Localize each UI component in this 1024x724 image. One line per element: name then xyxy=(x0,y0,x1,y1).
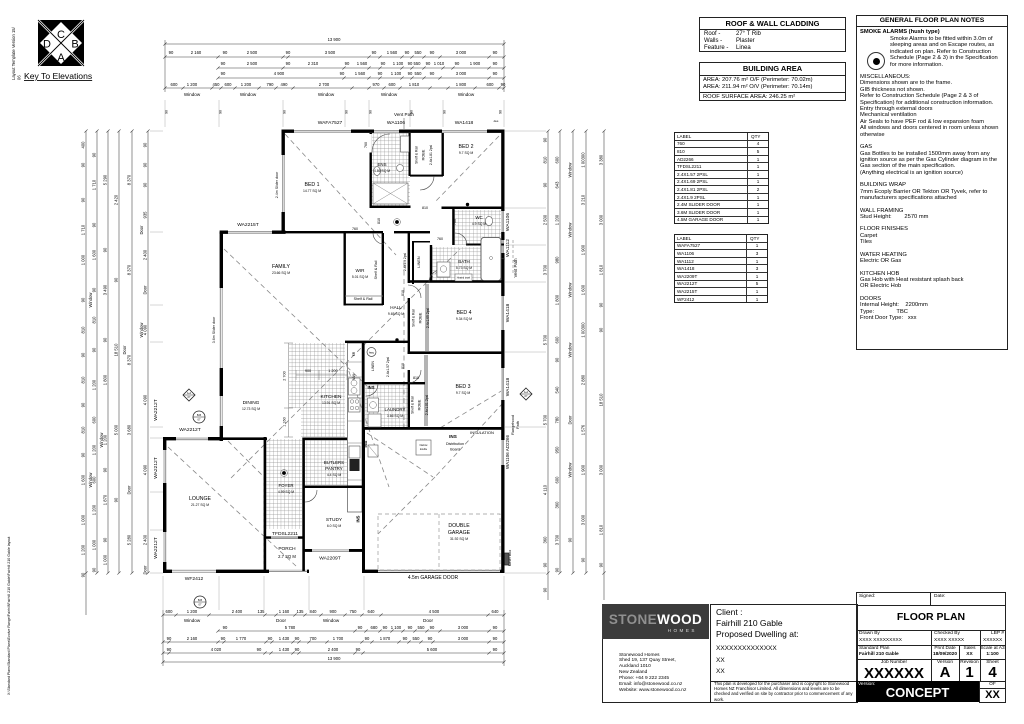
svg-text:1 800: 1 800 xyxy=(103,374,108,385)
svg-text:18 510: 18 510 xyxy=(599,393,604,406)
svg-text:1 00300: 1 00300 xyxy=(581,322,586,338)
svg-text:Window: Window xyxy=(568,462,573,478)
svg-text:07: 07 xyxy=(188,395,191,399)
svg-text:Layout Template Version 15/: Layout Template Version 15/ xyxy=(11,26,16,80)
svg-text:4 900: 4 900 xyxy=(274,71,285,76)
svg-text:D: D xyxy=(43,39,51,51)
svg-text:810: 810 xyxy=(81,426,86,434)
svg-text:1 900: 1 900 xyxy=(470,61,481,66)
svg-text:935: 935 xyxy=(143,211,148,219)
svg-text:07: 07 xyxy=(525,394,528,398)
svg-text:600: 600 xyxy=(389,82,397,87)
svg-text:13 900: 13 900 xyxy=(328,37,341,42)
svg-text:90: 90 xyxy=(358,625,363,630)
svg-text:Window: Window xyxy=(568,282,573,298)
svg-text:90: 90 xyxy=(493,61,498,66)
svg-text:07: 07 xyxy=(199,603,202,607)
svg-text:90: 90 xyxy=(430,50,435,55)
svg-text:ROBE: ROBE xyxy=(419,312,423,323)
svg-text:PANTRY: PANTRY xyxy=(325,466,342,471)
svg-text:ENS: ENS xyxy=(377,162,386,167)
svg-text:680: 680 xyxy=(371,625,379,630)
svg-text:B-B: B-B xyxy=(198,598,203,602)
svg-text:C: C xyxy=(57,29,65,41)
svg-text:9.7 SQ M: 9.7 SQ M xyxy=(456,391,470,395)
svg-text:2.4x1.81-2psl: 2.4x1.81-2psl xyxy=(425,395,429,416)
svg-text:WA2212T: WA2212T xyxy=(153,399,159,421)
svg-text:3.6m Slider door: 3.6m Slider door xyxy=(212,316,216,343)
svg-text:Window: Window xyxy=(323,618,340,623)
svg-text:810: 810 xyxy=(81,326,86,334)
svg-text:490: 490 xyxy=(281,82,289,87)
svg-text:4.5m GARAGE DOOR: 4.5m GARAGE DOOR xyxy=(408,575,459,581)
svg-text:INS: INS xyxy=(449,434,457,439)
svg-text:Window: Window xyxy=(240,92,257,97)
svg-text:5 290: 5 290 xyxy=(103,174,108,185)
svg-text:1 576: 1 576 xyxy=(581,424,586,435)
svg-text:400: 400 xyxy=(81,141,86,149)
svg-text:BED 3: BED 3 xyxy=(456,384,471,390)
svg-text:ROBE: ROBE xyxy=(418,399,422,410)
svg-text:8 370: 8 370 xyxy=(127,354,132,365)
svg-text:3 000: 3 000 xyxy=(458,636,469,641)
svg-text:4 090: 4 090 xyxy=(143,394,148,405)
svg-text:9.65 SQ M: 9.65 SQ M xyxy=(388,312,404,316)
svg-text:1 160: 1 160 xyxy=(283,417,287,427)
svg-text:90: 90 xyxy=(268,636,273,641)
svg-text:450: 450 xyxy=(213,82,221,87)
svg-text:790: 790 xyxy=(267,82,275,87)
svg-text:90: 90 xyxy=(81,162,86,167)
svg-text:760: 760 xyxy=(437,237,443,241)
svg-text:BUTLERS: BUTLERS xyxy=(324,460,344,465)
svg-text:750: 750 xyxy=(350,609,358,614)
svg-text:13.91 SQ M: 13.91 SQ M xyxy=(322,401,340,405)
svg-text:1 200: 1 200 xyxy=(81,544,86,555)
svg-text:1 200: 1 200 xyxy=(92,379,97,390)
svg-text:07: 07 xyxy=(198,418,201,422)
svg-text:4.4 SQ M: 4.4 SQ M xyxy=(327,473,341,477)
svg-text:6.0 SQ M: 6.0 SQ M xyxy=(327,524,341,528)
svg-text:600: 600 xyxy=(166,609,174,614)
svg-text:90: 90 xyxy=(493,636,498,641)
svg-text:90: 90 xyxy=(257,647,262,652)
svg-text:90: 90 xyxy=(378,71,383,76)
svg-text:INS: INS xyxy=(363,440,368,447)
svg-text:810: 810 xyxy=(422,206,428,210)
svg-text:Key To Elevations: Key To Elevations xyxy=(24,71,92,81)
svg-text:980: 980 xyxy=(555,256,560,264)
svg-text:2 700: 2 700 xyxy=(283,371,287,381)
svg-text:WA2212T: WA2212T xyxy=(179,427,201,433)
svg-text:90: 90 xyxy=(92,567,97,572)
svg-text:GARAGE: GARAGE xyxy=(448,530,471,536)
svg-text:Door: Door xyxy=(568,415,573,425)
svg-text:90: 90 xyxy=(92,152,97,157)
svg-text:1 710: 1 710 xyxy=(92,179,97,190)
svg-text:90: 90 xyxy=(543,562,548,567)
svg-text:Shelf & Rail: Shelf & Rail xyxy=(354,297,373,301)
svg-text:23.66 SQ M: 23.66 SQ M xyxy=(272,271,290,275)
svg-text:90: 90 xyxy=(493,625,498,630)
svg-text:DOUBLE: DOUBLE xyxy=(448,523,470,529)
svg-text:Window: Window xyxy=(381,92,398,97)
svg-text:90: 90 xyxy=(426,61,431,66)
svg-text:WIR: WIR xyxy=(356,268,366,273)
svg-text:90: 90 xyxy=(143,162,148,167)
svg-text:des: des xyxy=(494,119,499,123)
svg-text:Window: Window xyxy=(318,92,335,97)
svg-text:360: 360 xyxy=(543,536,548,544)
svg-text:PORCH: PORCH xyxy=(278,546,296,552)
svg-text:INS: INS xyxy=(368,385,375,390)
svg-text:Window: Window xyxy=(184,618,201,623)
svg-text:WA1418: WA1418 xyxy=(505,377,511,396)
svg-text:90: 90 xyxy=(493,71,498,76)
svg-text:90: 90 xyxy=(103,247,108,252)
svg-text:90: 90 xyxy=(81,197,86,202)
svg-text:5 000: 5 000 xyxy=(114,424,119,435)
svg-text:90: 90 xyxy=(356,647,361,652)
svg-text:1 200: 1 200 xyxy=(555,214,560,225)
svg-text:14.77 SQ M: 14.77 SQ M xyxy=(303,189,321,193)
svg-text:90: 90 xyxy=(543,587,548,592)
svg-text:Heated towel: Heated towel xyxy=(457,277,471,280)
svg-text:Door: Door xyxy=(139,225,144,235)
svg-text:90: 90 xyxy=(103,337,108,342)
svg-text:1 560: 1 560 xyxy=(357,61,368,66)
svg-text:1 00300: 1 00300 xyxy=(581,152,586,168)
svg-text:Shelf & Rail: Shelf & Rail xyxy=(374,260,378,279)
svg-text:3 000: 3 000 xyxy=(581,514,586,525)
svg-text:2 500: 2 500 xyxy=(247,50,258,55)
svg-text:INS: INS xyxy=(356,515,361,522)
svg-text:135: 135 xyxy=(297,609,305,614)
svg-text:90: 90 xyxy=(365,636,370,641)
svg-text:950: 950 xyxy=(555,446,560,454)
svg-text:1 000: 1 000 xyxy=(81,254,86,265)
svg-text:5 700: 5 700 xyxy=(543,334,548,345)
svg-text:1 430: 1 430 xyxy=(279,647,290,652)
svg-text:STUDY: STUDY xyxy=(326,517,343,523)
svg-text:2 400: 2 400 xyxy=(143,534,148,545)
svg-text:Window: Window xyxy=(458,92,475,97)
svg-text:double: double xyxy=(420,448,428,451)
svg-text:90: 90 xyxy=(555,357,560,362)
svg-text:600: 600 xyxy=(555,156,560,164)
svg-text:90: 90 xyxy=(372,50,377,55)
svg-text:760: 760 xyxy=(352,227,358,231)
svg-text:900: 900 xyxy=(330,609,338,614)
svg-text:Door: Door xyxy=(127,485,132,495)
svg-text:810: 810 xyxy=(401,290,405,296)
svg-text:5 780: 5 780 xyxy=(285,625,296,630)
svg-text:2 700: 2 700 xyxy=(319,82,330,87)
svg-text:810: 810 xyxy=(401,363,405,369)
svg-text:810: 810 xyxy=(81,376,86,384)
svg-text:90: 90 xyxy=(408,61,413,66)
svg-text:INSULATION: INSULATION xyxy=(470,430,494,435)
svg-text:3 000: 3 000 xyxy=(599,214,604,225)
svg-text:90: 90 xyxy=(295,647,300,652)
svg-text:90: 90 xyxy=(345,61,350,66)
svg-text:1 900: 1 900 xyxy=(581,464,586,475)
svg-text:TFDSL2211: TFDSL2211 xyxy=(272,531,298,537)
svg-text:4.86 SQ M: 4.86 SQ M xyxy=(374,169,390,173)
svg-text:WA1418: WA1418 xyxy=(505,303,511,322)
svg-text:90: 90 xyxy=(430,625,435,630)
svg-text:550: 550 xyxy=(413,636,421,641)
svg-text:Window: Window xyxy=(88,472,93,488)
svg-text:2 400: 2 400 xyxy=(232,609,243,614)
svg-text:90: 90 xyxy=(493,647,498,652)
svg-text:Window: Window xyxy=(568,222,573,238)
svg-text:90: 90 xyxy=(543,137,548,142)
svg-text:550: 550 xyxy=(414,61,422,66)
svg-text:2 500: 2 500 xyxy=(543,214,548,225)
svg-text:5 280: 5 280 xyxy=(127,534,132,545)
svg-text:600: 600 xyxy=(92,416,97,424)
svg-text:WC: WC xyxy=(475,215,482,220)
svg-text:360: 360 xyxy=(555,501,560,509)
svg-text:1 200: 1 200 xyxy=(328,369,338,373)
svg-text:90: 90 xyxy=(568,537,573,542)
svg-text:WA2212T: WA2212T xyxy=(153,457,159,479)
svg-text:90: 90 xyxy=(167,647,172,652)
svg-text:90: 90 xyxy=(408,625,413,630)
svg-text:1 200: 1 200 xyxy=(187,82,198,87)
svg-text:WA1106 AD2266: WA1106 AD2266 xyxy=(505,434,510,469)
svg-text:WA2215T: WA2215T xyxy=(237,222,259,228)
svg-text:90: 90 xyxy=(403,636,408,641)
svg-text:31.92 SQ M: 31.92 SQ M xyxy=(450,537,468,541)
svg-text:1 810: 1 810 xyxy=(599,524,604,535)
svg-text:12.73 SQ M: 12.73 SQ M xyxy=(242,407,260,411)
svg-text:Door: Door xyxy=(423,618,433,623)
svg-text:1 100: 1 100 xyxy=(391,71,402,76)
svg-text:Door: Door xyxy=(143,565,148,575)
svg-text:90: 90 xyxy=(499,110,503,114)
svg-text:5.73 SQ M: 5.73 SQ M xyxy=(456,266,472,270)
svg-text:X:\Standard Plans\Standard Pla: X:\Standard Plans\Standard Plans\Evolve … xyxy=(7,537,11,695)
svg-text:90: 90 xyxy=(114,277,119,282)
svg-text:8 370: 8 370 xyxy=(127,264,132,275)
svg-text:2 400: 2 400 xyxy=(328,647,339,652)
svg-text:1 000: 1 000 xyxy=(103,554,108,565)
svg-text:3 490: 3 490 xyxy=(103,284,108,295)
svg-text:1 100: 1 100 xyxy=(393,61,404,66)
svg-text:90: 90 xyxy=(501,82,506,87)
svg-text:2 160: 2 160 xyxy=(191,50,202,55)
svg-text:B: B xyxy=(71,39,78,51)
svg-text:2.4x1.69 2psl: 2.4x1.69 2psl xyxy=(426,308,430,328)
svg-text:Window: Window xyxy=(568,162,573,178)
svg-text:2.7 SQ M: 2.7 SQ M xyxy=(278,554,296,559)
svg-text:3 380: 3 380 xyxy=(599,154,604,165)
svg-text:Door: Door xyxy=(276,618,286,623)
svg-text:970: 970 xyxy=(373,82,381,87)
svg-text:Door: Door xyxy=(143,285,148,295)
svg-text:hwc: hwc xyxy=(369,351,375,355)
svg-text:BED 2: BED 2 xyxy=(459,144,474,150)
svg-text:Rangehood: Rangehood xyxy=(511,415,515,435)
svg-text:90: 90 xyxy=(81,402,86,407)
svg-text:4 500: 4 500 xyxy=(429,609,440,614)
svg-text:Shelf & Rail: Shelf & Rail xyxy=(412,309,416,327)
svg-text:21.27 SQ M: 21.27 SQ M xyxy=(191,503,209,507)
svg-text:90: 90 xyxy=(92,287,97,292)
svg-text:18 510: 18 510 xyxy=(114,343,119,356)
svg-text:90: 90 xyxy=(223,625,228,630)
svg-text:1 870: 1 870 xyxy=(103,494,108,505)
svg-text:LOUNGE: LOUNGE xyxy=(189,496,211,502)
svg-text:13 900: 13 900 xyxy=(328,656,341,661)
svg-text:1 100: 1 100 xyxy=(391,625,402,630)
svg-text:1 710: 1 710 xyxy=(81,224,86,235)
svg-text:90: 90 xyxy=(143,142,148,147)
svg-text:90: 90 xyxy=(340,71,345,76)
svg-text:4 090: 4 090 xyxy=(143,464,148,475)
svg-text:810: 810 xyxy=(92,316,97,324)
svg-text:90: 90 xyxy=(92,347,97,352)
svg-text:900: 900 xyxy=(305,369,311,373)
svg-text:90: 90 xyxy=(383,625,388,630)
svg-text:540: 540 xyxy=(555,386,560,394)
svg-text:KITCHEN: KITCHEN xyxy=(320,394,342,400)
svg-text:A-A: A-A xyxy=(524,390,529,394)
svg-text:B-B: B-B xyxy=(197,413,202,417)
svg-text:90: 90 xyxy=(103,537,108,542)
svg-text:WA1106: WA1106 xyxy=(505,213,511,231)
svg-text:90: 90 xyxy=(169,50,174,55)
svg-text:3 500: 3 500 xyxy=(325,50,336,55)
svg-text:5 600: 5 600 xyxy=(427,647,438,652)
svg-text:1 010: 1 010 xyxy=(434,61,445,66)
svg-text:600: 600 xyxy=(487,82,495,87)
svg-text:1 870: 1 870 xyxy=(380,636,391,641)
svg-text:90: 90 xyxy=(599,562,604,567)
svg-text:3 210: 3 210 xyxy=(581,194,586,205)
svg-text:810: 810 xyxy=(377,218,381,224)
svg-text:90: 90 xyxy=(81,352,86,357)
svg-text:Path: Path xyxy=(516,421,520,429)
svg-text:Window: Window xyxy=(568,342,573,358)
svg-text:Window: Window xyxy=(88,292,93,308)
svg-text:2.4m Slider door: 2.4m Slider door xyxy=(275,171,279,198)
svg-text:Door: Door xyxy=(122,345,127,355)
svg-text:90: 90 xyxy=(405,50,410,55)
svg-text:HALL: HALL xyxy=(390,305,402,310)
svg-text:Shelf & Rail: Shelf & Rail xyxy=(415,146,419,164)
svg-text:90: 90 xyxy=(286,61,291,66)
svg-text:2 500: 2 500 xyxy=(247,61,258,66)
svg-text:2 400: 2 400 xyxy=(143,249,148,260)
svg-text:90: 90 xyxy=(555,567,560,572)
svg-text:3 700: 3 700 xyxy=(543,264,548,275)
svg-text:2 880: 2 880 xyxy=(581,374,586,385)
svg-text:9.34 SQ M: 9.34 SQ M xyxy=(456,317,472,321)
svg-text:810: 810 xyxy=(413,376,419,380)
svg-text:A-A: A-A xyxy=(187,391,192,395)
svg-text:Distribution: Distribution xyxy=(446,442,464,446)
svg-text:600: 600 xyxy=(555,476,560,484)
svg-text:1 700: 1 700 xyxy=(333,636,344,641)
svg-text:1 600: 1 600 xyxy=(81,474,86,485)
svg-text:90: 90 xyxy=(221,71,226,76)
svg-text:90: 90 xyxy=(599,327,604,332)
svg-text:FOYER: FOYER xyxy=(278,483,293,488)
svg-text:760: 760 xyxy=(364,142,368,148)
svg-text:1 200: 1 200 xyxy=(241,82,252,87)
svg-text:3 000: 3 000 xyxy=(456,71,467,76)
svg-text:2.4x1.57 2psl: 2.4x1.57 2psl xyxy=(386,357,390,377)
svg-text:600: 600 xyxy=(171,82,179,87)
svg-text:1 000: 1 000 xyxy=(81,514,86,525)
svg-text:MW: MW xyxy=(352,373,356,380)
svg-text:1 430: 1 430 xyxy=(279,636,290,641)
svg-text:DINING: DINING xyxy=(243,400,260,406)
svg-text:LINEN: LINEN xyxy=(417,256,421,267)
svg-text:640: 640 xyxy=(492,609,500,614)
svg-text:1 600: 1 600 xyxy=(581,284,586,295)
svg-text:2 160: 2 160 xyxy=(187,636,198,641)
svg-text:FAMILY: FAMILY xyxy=(272,264,291,270)
svg-text:WA2209T: WA2209T xyxy=(319,556,341,562)
svg-text:90: 90 xyxy=(543,182,548,187)
svg-text:WF2412: WF2412 xyxy=(185,576,204,582)
svg-text:840: 840 xyxy=(310,609,318,614)
svg-text:06: 06 xyxy=(17,75,22,80)
svg-text:643: 643 xyxy=(555,181,560,189)
svg-text:FR: FR xyxy=(352,351,356,356)
svg-text:90: 90 xyxy=(599,302,604,307)
svg-text:550: 550 xyxy=(415,71,423,76)
svg-text:Window: Window xyxy=(139,322,144,338)
svg-text:1 900: 1 900 xyxy=(581,244,586,255)
svg-text:BED 1: BED 1 xyxy=(305,182,320,188)
svg-text:1 770: 1 770 xyxy=(236,636,247,641)
svg-text:90: 90 xyxy=(455,61,460,66)
svg-text:1 560: 1 560 xyxy=(355,71,366,76)
svg-text:4.99 SQ M: 4.99 SQ M xyxy=(278,490,294,494)
svg-text:BED 4: BED 4 xyxy=(457,310,472,316)
svg-text:90: 90 xyxy=(103,467,108,472)
svg-text:90: 90 xyxy=(167,636,172,641)
svg-text:1 200: 1 200 xyxy=(92,504,97,515)
svg-text:3 680: 3 680 xyxy=(127,424,132,435)
svg-text:3.66 SQ M: 3.66 SQ M xyxy=(387,414,403,418)
svg-text:1 200: 1 200 xyxy=(187,609,198,614)
svg-text:3 700: 3 700 xyxy=(555,534,560,545)
svg-text:1 810: 1 810 xyxy=(409,82,420,87)
svg-text:90: 90 xyxy=(381,61,386,66)
svg-text:1 800: 1 800 xyxy=(555,294,560,305)
svg-text:Shelf & Rail: Shelf & Rail xyxy=(411,396,415,414)
svg-text:810: 810 xyxy=(543,156,548,164)
svg-text:8 370: 8 370 xyxy=(127,174,132,185)
svg-text:2.4x1.9 2psl: 2.4x1.9 2psl xyxy=(403,253,407,272)
svg-text:640: 640 xyxy=(368,609,376,614)
svg-text:760: 760 xyxy=(453,219,457,225)
svg-text:700: 700 xyxy=(310,636,318,641)
svg-text:90: 90 xyxy=(81,297,86,302)
svg-text:4.9 SQ M: 4.9 SQ M xyxy=(472,222,486,226)
svg-text:90: 90 xyxy=(428,636,433,641)
svg-text:90: 90 xyxy=(92,222,97,227)
svg-text:1 560: 1 560 xyxy=(387,50,398,55)
svg-text:90: 90 xyxy=(223,50,228,55)
svg-text:3 000: 3 000 xyxy=(599,464,604,475)
